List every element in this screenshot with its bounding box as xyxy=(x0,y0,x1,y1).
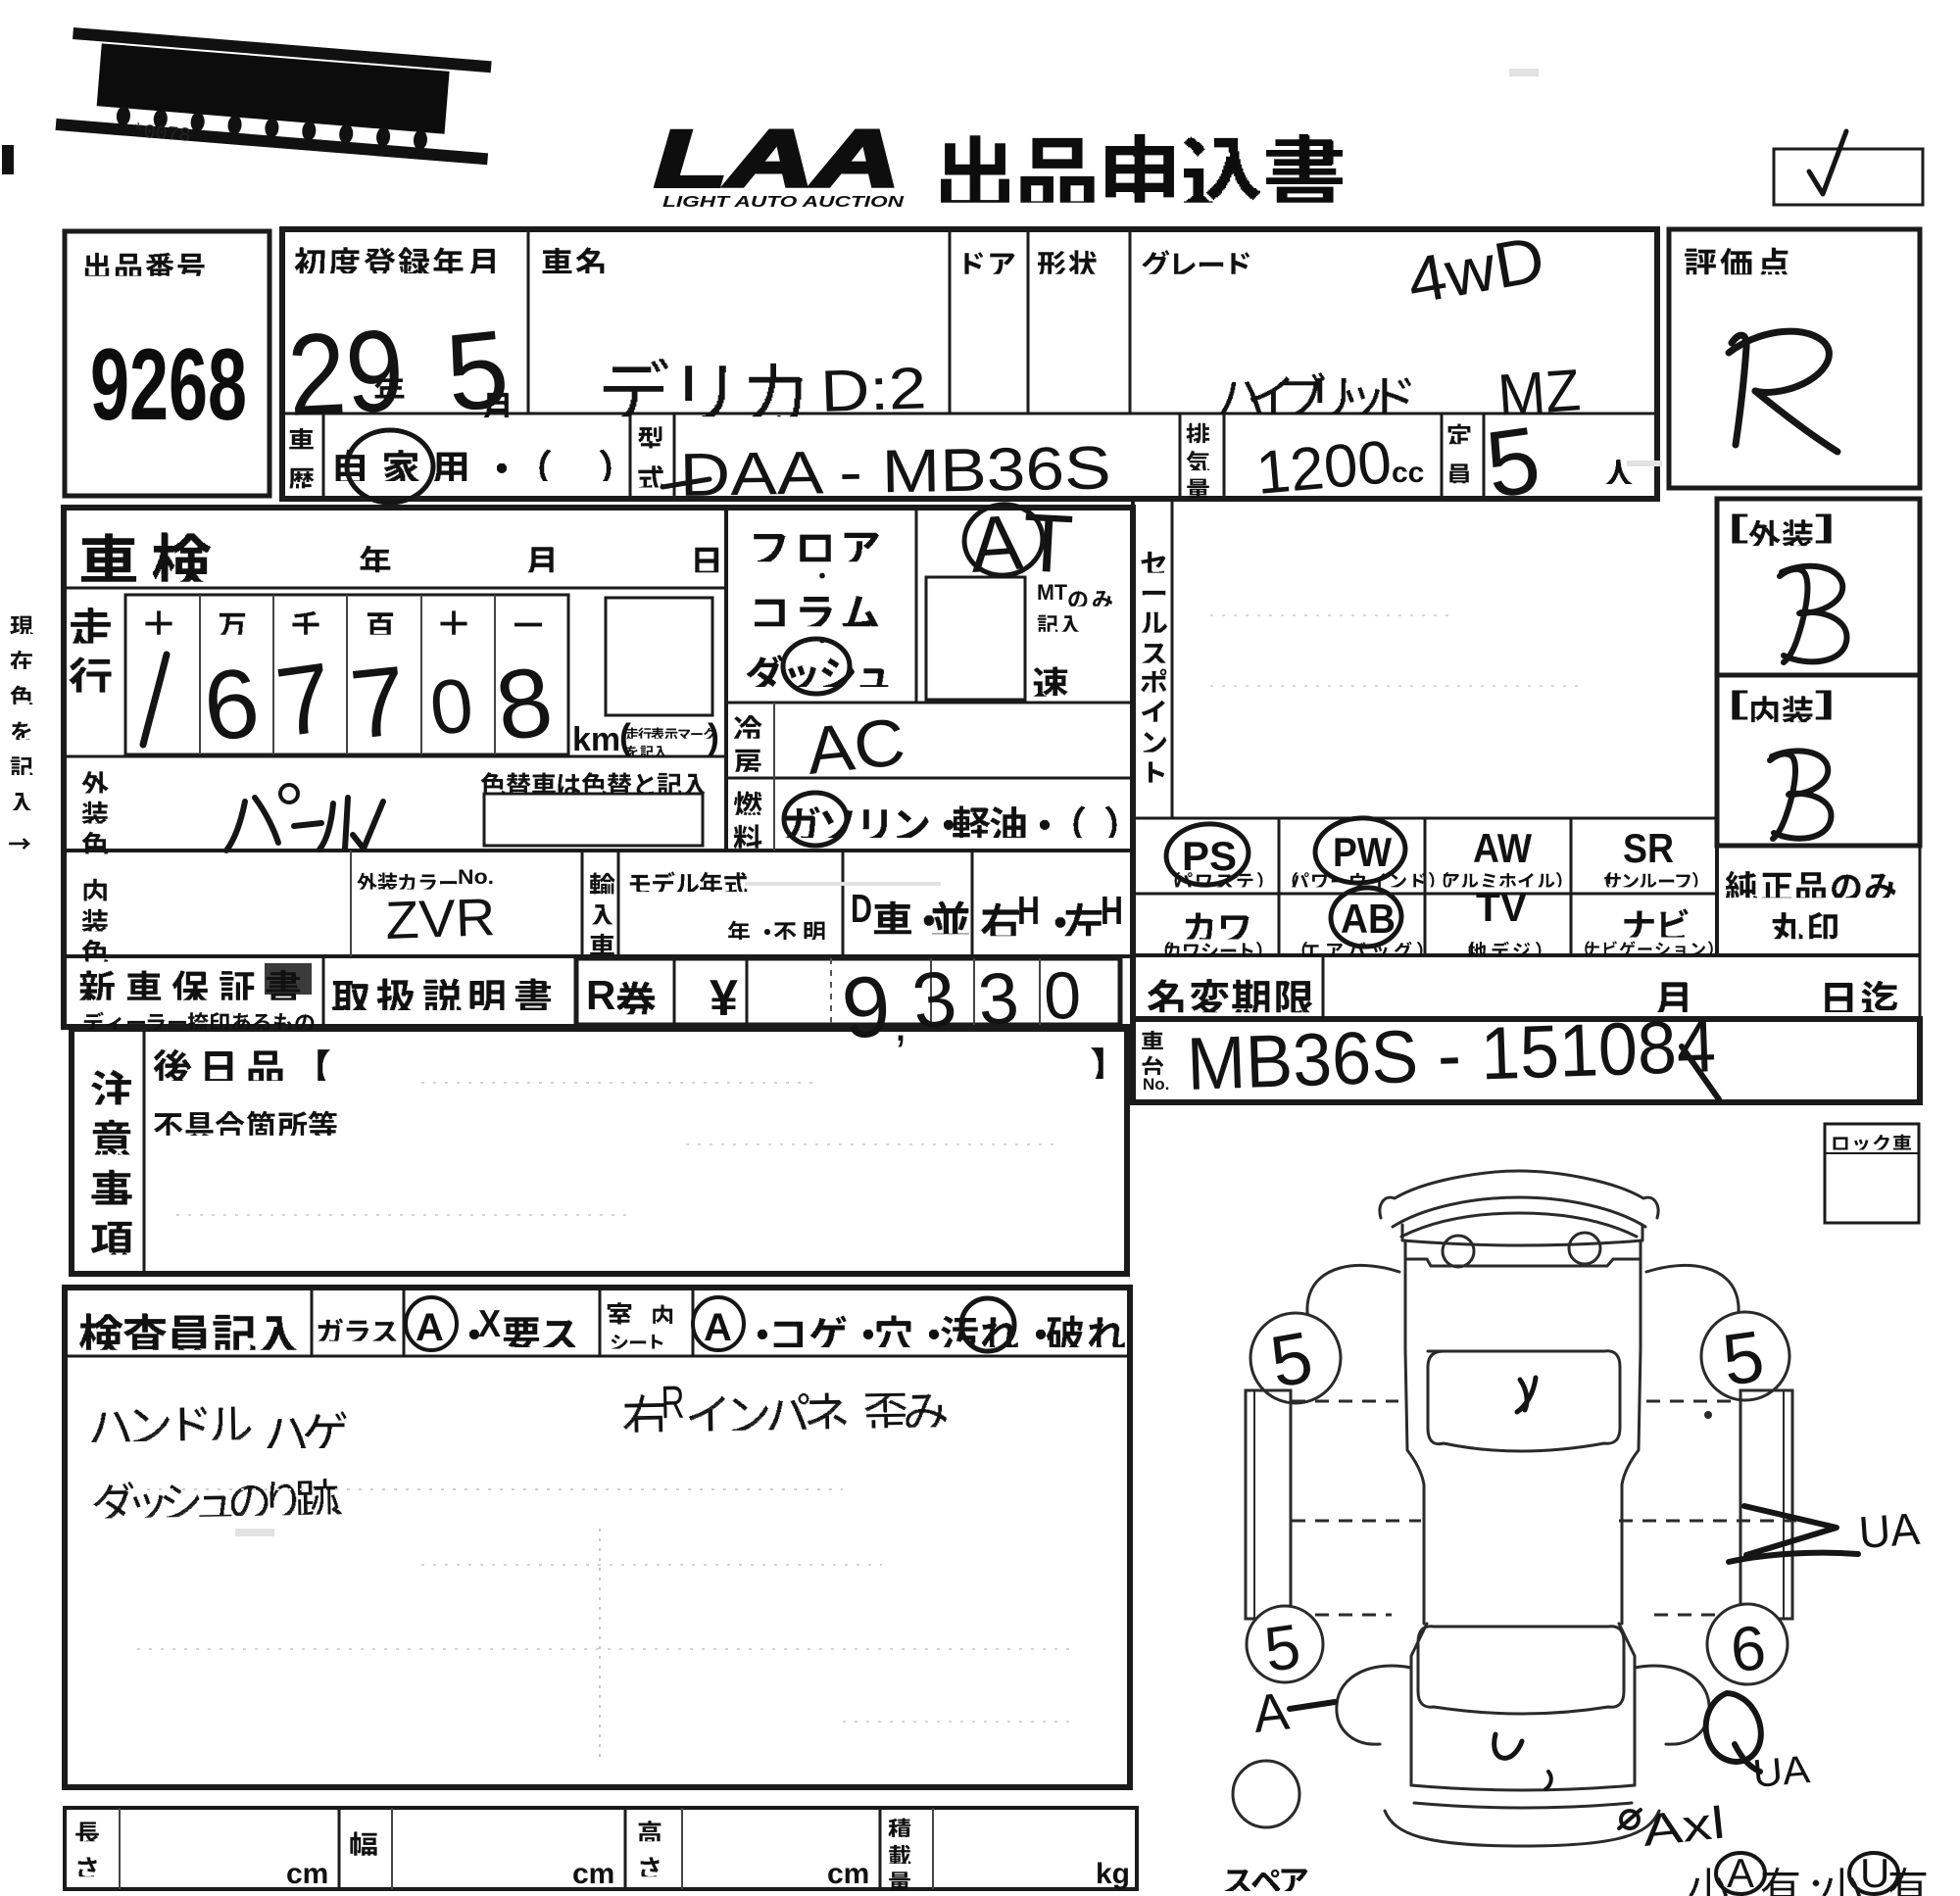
svg-text:AC: AC xyxy=(804,705,908,789)
svg-text:kg: kg xyxy=(1096,1858,1130,1890)
svg-text:6: 6 xyxy=(199,648,265,762)
svg-text:0: 0 xyxy=(1043,958,1082,1034)
svg-text:cm: cm xyxy=(572,1858,614,1890)
svg-text:]: ] xyxy=(1815,685,1835,720)
svg-text:3: 3 xyxy=(907,954,960,1045)
svg-text:No.: No. xyxy=(458,866,494,889)
svg-text:D: D xyxy=(851,886,872,931)
svg-text:¥: ¥ xyxy=(710,970,738,1027)
svg-text:H: H xyxy=(1101,888,1123,933)
svg-text:6: 6 xyxy=(1728,1612,1769,1685)
svg-text:MB36S - 151084: MB36S - 151084 xyxy=(1186,1004,1718,1106)
svg-text:PS: PS xyxy=(1182,833,1237,879)
svg-text:1200: 1200 xyxy=(1253,428,1394,508)
svg-text:0: 0 xyxy=(426,661,477,752)
svg-text:LIGHT AUTO AUCTION: LIGHT AUTO AUCTION xyxy=(662,194,905,211)
svg-text:,: , xyxy=(894,997,907,1051)
svg-text:3: 3 xyxy=(975,956,1021,1041)
svg-text:5: 5 xyxy=(440,307,514,435)
svg-text:PW: PW xyxy=(1333,829,1392,875)
svg-text:7: 7 xyxy=(269,642,339,758)
svg-text:8: 8 xyxy=(489,646,559,762)
svg-text:H: H xyxy=(1017,888,1040,933)
svg-text:LAA: LAA xyxy=(655,115,900,204)
svg-text:cm: cm xyxy=(286,1858,328,1890)
svg-text:UA: UA xyxy=(1857,1503,1922,1558)
svg-text:TV: TV xyxy=(1476,884,1527,930)
svg-text:]: ] xyxy=(1815,509,1835,544)
svg-text:R: R xyxy=(586,972,615,1018)
svg-text:A: A xyxy=(416,1306,444,1349)
svg-text:7: 7 xyxy=(346,646,412,760)
svg-text:A: A xyxy=(1250,1681,1292,1743)
svg-text:D:2: D:2 xyxy=(819,355,927,424)
svg-text:[: [ xyxy=(1729,509,1749,544)
svg-text:29: 29 xyxy=(284,306,407,441)
svg-text:cm: cm xyxy=(827,1858,869,1890)
svg-text:X: X xyxy=(478,1303,501,1345)
svg-text:UA: UA xyxy=(1751,1748,1812,1796)
svg-text:9268: 9268 xyxy=(90,328,247,442)
svg-text:No.: No. xyxy=(1143,1075,1169,1094)
svg-text:A: A xyxy=(1727,1850,1754,1896)
svg-text:R: R xyxy=(661,1376,685,1428)
svg-text:ZVR: ZVR xyxy=(384,888,496,950)
svg-text:[: [ xyxy=(1729,685,1749,720)
svg-text:km: km xyxy=(572,721,620,758)
svg-text:cc: cc xyxy=(1392,457,1424,489)
svg-text:AB: AB xyxy=(1341,896,1396,942)
svg-text:Axl: Axl xyxy=(1641,1796,1728,1855)
svg-text:AW: AW xyxy=(1473,825,1532,871)
svg-text:A: A xyxy=(704,1306,732,1349)
svg-text:SR: SR xyxy=(1623,825,1674,871)
svg-text:9: 9 xyxy=(838,956,894,1057)
svg-text:*0078: *0078 xyxy=(131,121,192,148)
svg-text:4wD: 4wD xyxy=(1402,222,1550,317)
svg-text:): ) xyxy=(708,716,719,756)
